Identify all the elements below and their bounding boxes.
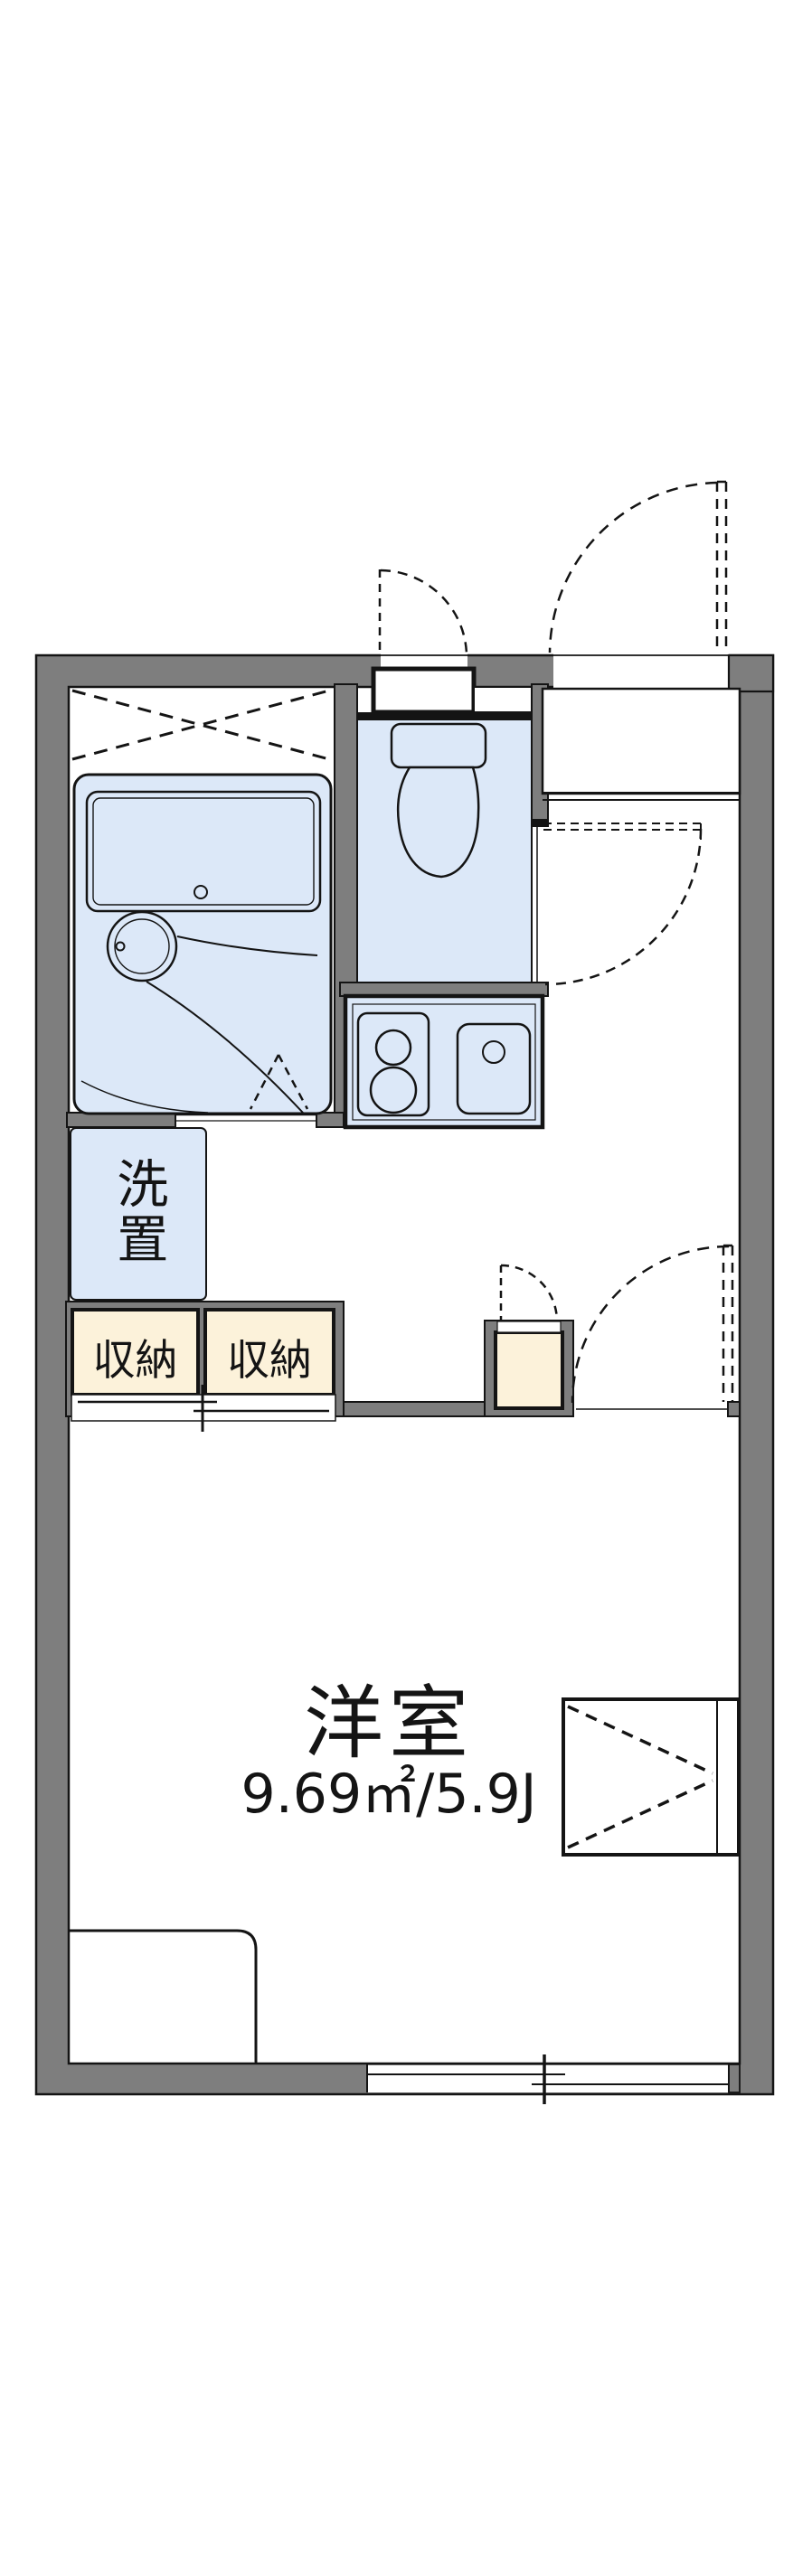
genkan: [543, 689, 740, 800]
entrance-opening: [553, 653, 729, 690]
bathroom: [72, 691, 331, 1121]
room-area-label: 9.69㎡/5.9J: [163, 1750, 615, 1829]
hall-bottom-wall: [333, 1402, 486, 1416]
pipe-space-slot: [497, 1321, 561, 1332]
entrance-door-arc: [550, 483, 717, 653]
room-door-leaf: [723, 1246, 732, 1402]
entrance-door-leaf: [717, 482, 726, 653]
entrance-corner-wall: [729, 655, 773, 691]
toilet-door-leaf: [543, 823, 701, 840]
kitchen: [345, 996, 543, 1127]
toilet-tank-icon: [392, 724, 486, 767]
storage-door-arc: [381, 570, 467, 654]
storage-label-2: 収納: [205, 1325, 334, 1387]
storage-label-1: 収納: [72, 1325, 198, 1387]
toilet-door-arc: [545, 829, 701, 984]
toilet-room: [357, 669, 537, 982]
pipe-space-door-arc: [501, 1265, 557, 1321]
pipe-space-box: [496, 1332, 562, 1408]
unit-bath: [74, 775, 331, 1114]
floorplan-drawing: [0, 0, 812, 2576]
exterior-storage-alcove: [373, 669, 474, 712]
window-opening: [367, 2065, 731, 2092]
window-end-wall-stub: [729, 2064, 740, 2092]
bed-outline: [70, 1931, 256, 2064]
floorplan-page: 洋室 9.69㎡/5.9J 洗置 収納 収納: [0, 0, 812, 2576]
hall-bottom-wall-stub: [728, 1402, 740, 1416]
room-door-arc: [572, 1246, 729, 1403]
pipe-space: [485, 1321, 573, 1416]
toilet-corner-notch: [474, 687, 532, 712]
bath-bottom-wall-right: [316, 1113, 344, 1127]
laundry-space-label: 洗置: [109, 1157, 166, 1267]
bathroom-hatch-x: [72, 691, 329, 759]
kitchen-unit: [345, 996, 543, 1127]
genkan-floor: [543, 689, 740, 794]
